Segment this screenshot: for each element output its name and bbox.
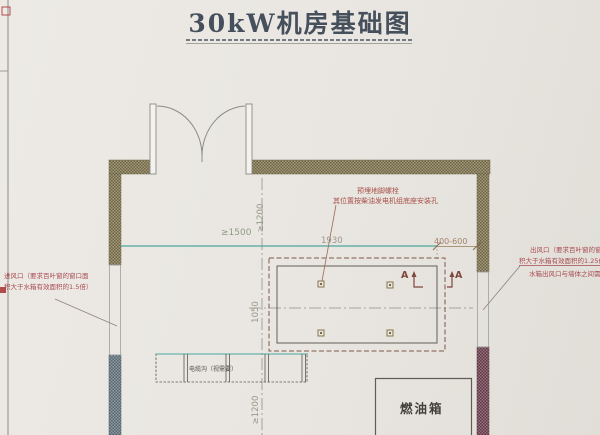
drawing-title: 30kW机房基础图	[150, 4, 450, 40]
dim-top-clearance: ≥1200	[256, 200, 266, 236]
outlet-note-line2: 积大于水箱有效面积的1.25倍）	[519, 255, 600, 265]
dim-bottom-clearance: ≥1200	[251, 392, 261, 428]
centerlines	[249, 178, 473, 435]
anchor-bolt-note-line1: 预埋地脚螺栓	[357, 186, 399, 196]
vent-openings	[110, 265, 489, 355]
dim-rear-clearance: 400-600	[434, 237, 467, 246]
inlet-note-line2: 积大于水箱有效面积的1.5倍）	[4, 281, 92, 291]
outlet-note-line3: 水箱出风口与墙体之间需装导风	[529, 268, 600, 278]
section-label-left: A	[401, 270, 408, 281]
sheet-frame	[0, 0, 10, 435]
dim-foundation-length: 1930	[321, 236, 343, 246]
anchor-bolt-note-line2: 其位置按柴油发电机组底座安装孔	[333, 196, 438, 206]
title-underline	[186, 40, 412, 44]
foundation-pad	[269, 258, 445, 351]
fuel-tank-label: 燃油箱	[400, 398, 444, 417]
dim-foundation-width: 1050	[251, 294, 261, 330]
outlet-note-line1: 出风口（要求百叶窗的窗口面	[530, 244, 600, 254]
section-label-right: A	[455, 270, 462, 281]
double-door	[150, 104, 252, 174]
anchor-bolt-icon	[318, 281, 393, 336]
section-marks	[412, 271, 455, 287]
inlet-note-line1: 进风口（要求百叶窗的窗口面	[4, 270, 89, 280]
blueprint-sheet: 30kW机房基础图 进风口（要求百叶窗的窗口面 积大于水箱有效面积的1.5倍） …	[0, 0, 600, 435]
floor-plan-drawing	[0, 0, 600, 435]
dim-front-clearance: ≥1500	[221, 228, 251, 238]
cable-trench-label: 电缆沟（视需要）	[189, 364, 237, 373]
